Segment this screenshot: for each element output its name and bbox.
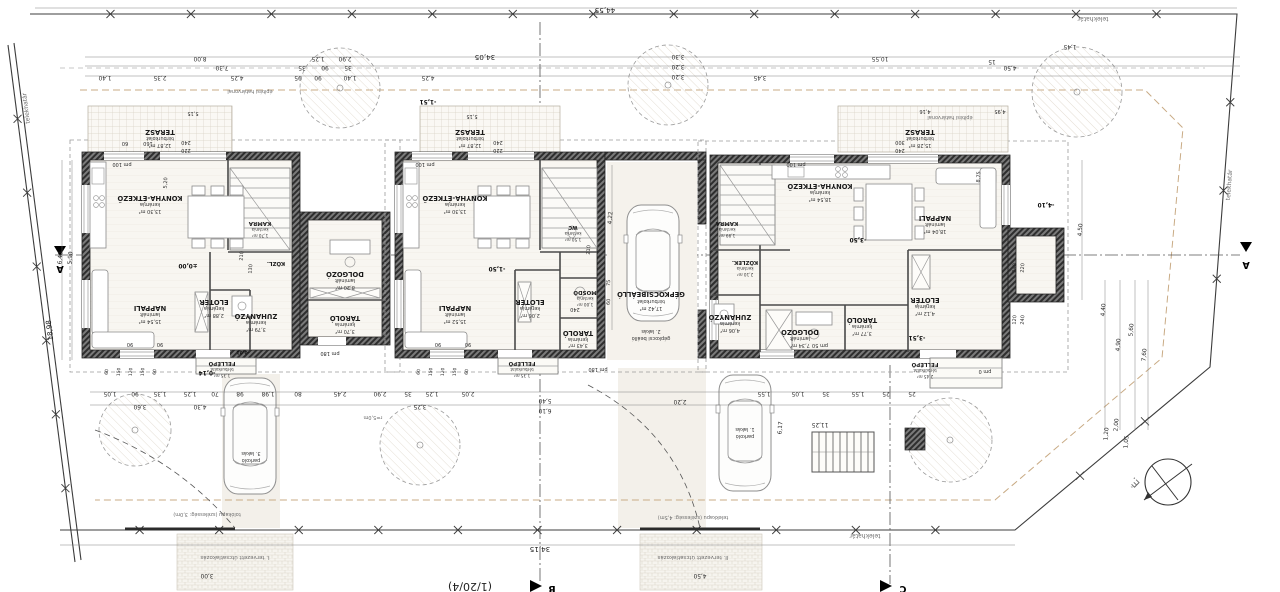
dim-label: 5,15 [466, 113, 477, 119]
dining-table [188, 186, 244, 248]
sub-label: 2,45 m² [916, 374, 933, 379]
dim-label: 1,20 [1104, 427, 1111, 441]
dim-label: 3,20 [671, 63, 684, 69]
dim-label: 120 [1012, 315, 1019, 325]
dim-label: 60 [122, 140, 128, 146]
room-label: KÖZLEK. [732, 259, 758, 266]
dim-label: 6,17 [778, 421, 785, 435]
dim-label: 220 [493, 147, 503, 153]
sub-label: kerámia [246, 319, 266, 326]
sub-label: 18,54 m² [809, 196, 832, 202]
dim-label: 90 [157, 341, 163, 347]
dim-label: 98 [236, 390, 244, 396]
sub-label: kerámia [204, 305, 224, 312]
dim-label: 25 [882, 390, 890, 396]
dim-label: 1,05 [103, 390, 116, 396]
dim-label: 1,35 [153, 390, 166, 396]
sub-label: 1. lakás [735, 426, 755, 433]
sub-label: térburkolat [510, 367, 534, 372]
dim-label: 220 [181, 147, 191, 153]
dim-label: 120 [440, 367, 447, 376]
sub-label: kerámia [736, 266, 753, 271]
dim-label: 15 [988, 58, 996, 64]
dim-label: 1,05 [791, 390, 804, 396]
sub-label: 4,12 m² [915, 310, 935, 316]
sub-label: laminált [335, 277, 355, 284]
dim-label: 210 [586, 245, 593, 255]
tree-canopy [380, 405, 460, 485]
site-plan-sheet: (1/20/4) TERASZKONYHA-ÉTKEZŐNAPPALIKAMRA… [0, 0, 1280, 592]
dim-label: 120 [128, 367, 135, 376]
level-label: ±0,00 [178, 262, 197, 268]
dim-label: 240 [1020, 315, 1027, 325]
dim-label: 240 [570, 306, 580, 312]
room-label: FELLÉPŐ [208, 360, 235, 368]
dim-label: 1,25 [311, 55, 324, 61]
dim-label: 90 [321, 64, 329, 70]
dim-label: 60 [104, 369, 110, 375]
dim-label: 6,10 [538, 407, 551, 413]
dim-label: pm 100 [786, 161, 805, 167]
dim-label: 3,00 [200, 572, 213, 578]
dim-label: 4,30 [193, 403, 206, 409]
sub-label: 13,30 m² [139, 208, 162, 214]
sub-label: 8,20 m² [335, 284, 355, 290]
dim-label: 90 [127, 341, 133, 347]
room-label: TERASZ [455, 128, 485, 136]
level-label: -3,50 [850, 236, 867, 242]
room-label: NAPPALI [134, 304, 166, 312]
dim-label: 1,98 [261, 390, 274, 396]
room-label: FELLÉPŐ [911, 361, 938, 369]
sub-label: 3,79 m² [246, 326, 266, 332]
dim-label: pm 180 [588, 366, 607, 372]
dim-label: 130 [248, 264, 255, 274]
sub-label: kerámia [915, 303, 935, 310]
marker-label: A [1242, 259, 1250, 270]
site-label: II. tervezett útcsatlakozás [657, 554, 728, 561]
sub-label: kerámia [718, 227, 735, 232]
room-label: TERASZ [145, 128, 175, 136]
dim-label: 60 [606, 299, 612, 306]
sub-label: 7,34 m² [790, 342, 810, 348]
sheet-note: (1/20/4) [448, 580, 492, 592]
sub-label: kerámia [576, 296, 593, 301]
dim-label: 4,16 [919, 108, 930, 114]
room-label: KÖZL. [267, 260, 285, 267]
dim-label: 4,50 [693, 572, 706, 578]
sub-label: 2,06 m² [520, 312, 540, 318]
dim-label: 90 [131, 390, 139, 396]
dim-label: 210 [239, 251, 246, 261]
dim-label: 90 [314, 74, 322, 80]
dim-label: 4,40 [1101, 303, 1108, 317]
dim-label: 11,25 [811, 421, 828, 427]
sub-label: 3,43 m² [568, 342, 588, 348]
dim-label: 2,00 [1114, 418, 1121, 432]
dim-label: 1,40 [98, 74, 111, 80]
room-label: GÉPKOCSIBEÁLLÓ [617, 290, 685, 299]
big-label: 44,55 [595, 6, 616, 15]
dim-label: 1,25 [183, 390, 196, 396]
sub-label: térburkolat [913, 368, 937, 373]
site-label: telekkapu (szélesség: 4,5m) [658, 514, 728, 521]
sub-label: laminált [925, 221, 945, 228]
dim-label: 1,05 [1124, 435, 1131, 449]
dim-label: 35 [298, 64, 306, 70]
big-label: 34,05 [475, 53, 496, 62]
sub-label: 17,42 m² [640, 305, 663, 311]
big-label: 34,15 [530, 545, 551, 554]
sub-label: kerámia [810, 189, 830, 196]
dim-label: 4,95 [994, 108, 1005, 114]
dim-label: 3,60 [133, 403, 146, 409]
dim-label: pm 0 [979, 368, 992, 374]
dim-label: 95 [294, 74, 302, 80]
dim-label: 4,50 [1003, 64, 1016, 70]
site-label: r=5,0m [363, 414, 382, 420]
dim-label: 35 [822, 390, 830, 396]
dim-label: 35 [404, 390, 412, 396]
sub-label: kerámia [564, 231, 581, 236]
dim-label: 1,25 [425, 390, 438, 396]
dim-label: 60 [464, 369, 470, 375]
dim-label: 35 [344, 64, 352, 70]
room-label: TERASZ [905, 128, 935, 136]
dim-label: 3,20 [671, 73, 684, 79]
site-label: I. tervezett útcsatlakozás [200, 554, 269, 561]
dim-label: 2,90 [338, 55, 351, 61]
room-label: WC [568, 224, 578, 230]
dim-label: 80 [294, 390, 302, 396]
dim-label: 1,55 [757, 390, 770, 396]
sub-label: 1,70 m² [251, 233, 268, 238]
sub-label: parkoló [242, 457, 261, 464]
dim-label: 5,15 [187, 110, 198, 116]
dim-label: 2,20 [673, 398, 686, 404]
room-label: NAPPALI [439, 304, 471, 312]
sub-label: 1,50 m² [564, 237, 581, 242]
dim-label: 7,60 [1142, 348, 1149, 362]
dim-label: 5,20 [163, 177, 170, 189]
dim-label: 150 [140, 367, 147, 376]
sub-label: parkoló [736, 433, 755, 440]
sub-label: 3,77 m² [852, 330, 872, 336]
sub-label: laminált [445, 311, 465, 318]
dim-label: 5,90 [68, 251, 75, 265]
marker-label: C [899, 583, 906, 592]
sub-label: laminált [790, 335, 810, 342]
dim-label: 4,25 [230, 74, 243, 80]
level-label: -0,14 [199, 369, 216, 375]
site-label: építési határvonal [227, 88, 272, 95]
sub-label: kerámia [852, 323, 872, 330]
dim-label: 4,50 [1078, 223, 1085, 237]
dim-label: 150 [452, 367, 459, 376]
room-label: KAMRA [248, 220, 271, 226]
dim-label: 75 [606, 280, 612, 287]
dim-label: 90 [435, 341, 441, 347]
sub-label: 2,88 m² [204, 312, 224, 318]
dim-label: 4,22 [608, 211, 615, 225]
level-label: -3,51 [909, 334, 926, 340]
sub-label: térburkolat [906, 135, 934, 142]
sub-label: 1,35 m² [513, 373, 530, 378]
staircase [720, 165, 775, 245]
dim-label: 1,40 [343, 74, 356, 80]
sub-label: térburkolat [456, 135, 484, 142]
dim-label: 7,30 [215, 64, 228, 70]
dim-label: pm 50 [812, 342, 828, 348]
dim-label: 150 [428, 367, 435, 376]
dim-label: 240 [181, 139, 191, 145]
sub-label: 2. lakás [641, 328, 661, 335]
level-label: -0,01 [237, 349, 250, 355]
dim-label: 4,25 [421, 74, 434, 80]
room-label: MOSDÓ [573, 289, 597, 296]
dim-label: pm 100 [415, 161, 434, 167]
sub-label: 3. lakás [241, 450, 261, 457]
dim-label: 3,45 [753, 74, 766, 80]
marker-label: B [548, 583, 555, 592]
room-label: FELLÉPŐ [508, 360, 535, 368]
sub-label: 15,52 m² [444, 318, 467, 324]
sub-label: kerámia [140, 201, 160, 208]
dim-label: 3,30 [671, 53, 684, 59]
dim-label: 8,00 [193, 55, 206, 61]
dim-label: 70 [211, 390, 219, 396]
dim-label: 10,55 [871, 55, 888, 61]
room-label: NAPPALI [919, 214, 951, 222]
sub-label: 13,30 m² [444, 208, 467, 214]
dim-label: 4,90 [1116, 338, 1123, 352]
sub-label: kerámia [445, 201, 465, 208]
sub-label: 12,87 m² [459, 142, 482, 148]
dim-label: 1,55 [851, 390, 864, 396]
room-label: KAMRA [715, 220, 738, 226]
sub-label: 4,06 m² [720, 327, 740, 333]
level-label: -1,51 [420, 98, 437, 104]
dim-label: 5,40 [538, 397, 551, 403]
site-label: építési határvonal [927, 114, 972, 121]
dim-label: 150 [116, 367, 123, 376]
sub-label: kerámia [720, 320, 740, 327]
site-label: telekhatár [1077, 15, 1108, 22]
level-label: -4,10 [1038, 201, 1055, 207]
sub-label: laminált [140, 311, 160, 318]
floor-plan-drawing: (1/20/4) TERASZKONYHA-ÉTKEZŐNAPPALIKAMRA… [0, 0, 1280, 592]
sub-label: 1,99 m² [718, 233, 735, 238]
tree-canopy [1032, 47, 1122, 137]
sub-label: 18,04 m² [924, 228, 947, 234]
sub-label: térburkolat [637, 298, 665, 305]
dim-label: 2,45 [333, 390, 346, 396]
sub-label: kerámia [568, 336, 588, 343]
dim-label: 300 [895, 139, 905, 145]
terrace [420, 106, 560, 152]
site-label: tolókapu (szélesség: 3,0m) [173, 511, 241, 518]
wardrobe [195, 292, 208, 332]
sub-label: gépkocsi beálló [632, 335, 671, 342]
site-label: telekhatár [849, 532, 880, 539]
dim-label: 1,45 [1063, 43, 1076, 49]
sub-label: kerámia [335, 321, 355, 328]
sub-label: kerámia [251, 227, 268, 232]
dim-label: pm 100 [112, 161, 131, 167]
dim-label: 240 [493, 139, 503, 145]
dim-label: 3,25 [413, 403, 426, 409]
sub-label: 2,10 m² [736, 272, 753, 277]
dim-label: 220 [1020, 263, 1027, 273]
dim-label: 60 [152, 369, 158, 375]
dim-label: pm 180 [320, 350, 339, 356]
dim-label: 160 [143, 140, 153, 146]
dim-label: 60 [416, 369, 422, 375]
sub-label: kerámia [520, 305, 540, 312]
dim-label: 5,60 [1129, 323, 1136, 337]
sub-label: 15,54 m² [139, 318, 162, 324]
dim-label: 2,35 [153, 74, 166, 80]
dim-label: 6,40 [58, 251, 65, 265]
dim-label: 2,05 [461, 390, 474, 396]
dim-label: 25 [908, 390, 916, 396]
dim-label: 8,75 [976, 171, 983, 183]
sub-label: 3,70 m² [335, 328, 355, 334]
dim-label: 240 [1012, 263, 1019, 273]
dim-label: 90 [465, 341, 471, 347]
sub-label: 15,28 m² [909, 142, 932, 148]
dim-label: 240 [895, 147, 905, 153]
level-label: -1,50 [489, 265, 506, 271]
dim-label: 2,90 [373, 390, 386, 396]
